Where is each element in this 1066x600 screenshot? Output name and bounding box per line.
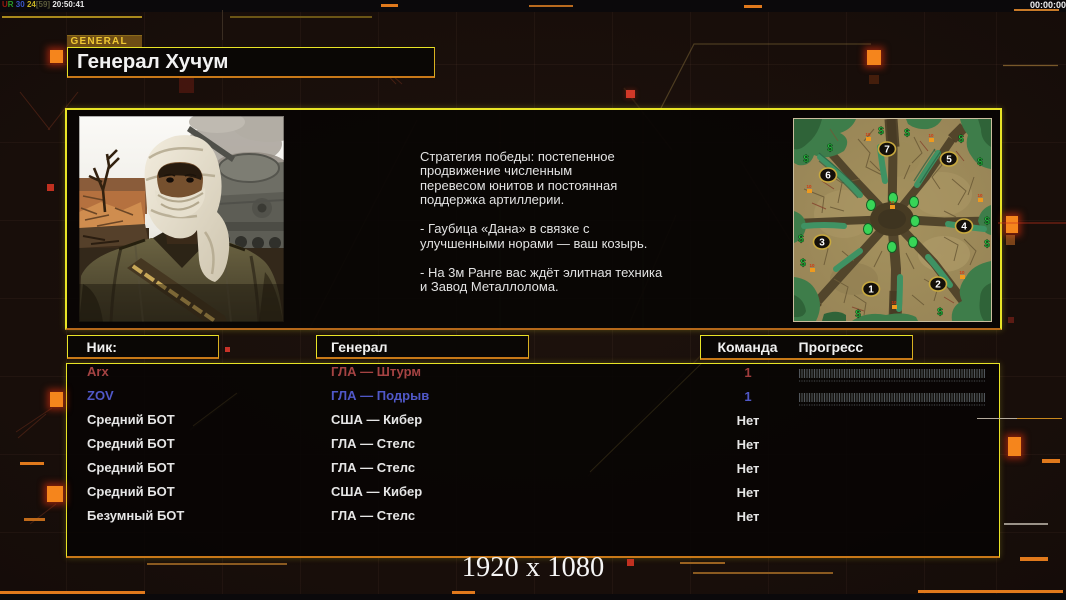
svg-text:$: $ [977,157,983,168]
svg-text:$: $ [878,126,884,137]
svg-text:10: 10 [928,133,934,138]
svg-text:$: $ [800,258,806,269]
svg-text:$: $ [904,128,910,139]
svg-text:$: $ [958,134,964,145]
svg-text:2: 2 [935,280,941,291]
svg-text:$: $ [803,154,809,165]
svg-text:6: 6 [825,171,831,182]
svg-text:10: 10 [891,300,897,305]
svg-text:10: 10 [959,270,965,275]
svg-text:10: 10 [977,193,983,198]
svg-text:$: $ [827,143,833,154]
svg-text:$: $ [984,239,990,250]
svg-text:7: 7 [884,145,890,156]
svg-text:1: 1 [868,285,874,296]
svg-text:$: $ [937,307,943,318]
svg-text:$: $ [798,234,804,245]
svg-text:$: $ [984,216,990,227]
svg-text:5: 5 [946,155,952,166]
svg-text:10: 10 [809,263,815,268]
svg-text:4: 4 [961,222,967,233]
svg-text:10: 10 [806,184,812,189]
svg-text:10: 10 [889,200,895,205]
svg-text:$: $ [855,309,861,320]
svg-text:10: 10 [865,132,871,137]
svg-text:3: 3 [819,238,825,249]
